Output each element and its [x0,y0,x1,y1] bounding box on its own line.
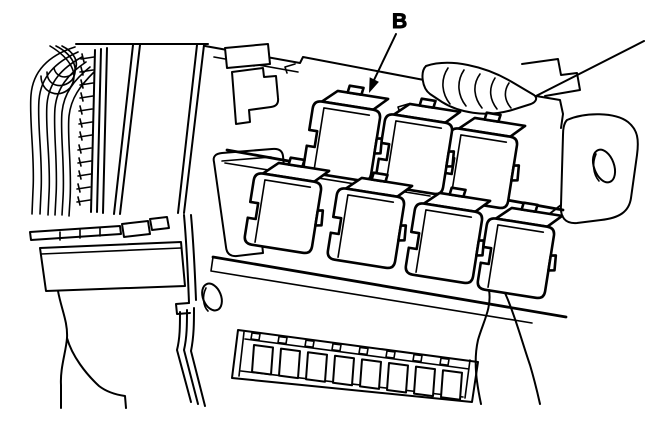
relay-location-diagram: B [0,0,672,432]
figure-canvas: B [0,0,672,432]
callout-label-b: B [392,10,407,33]
